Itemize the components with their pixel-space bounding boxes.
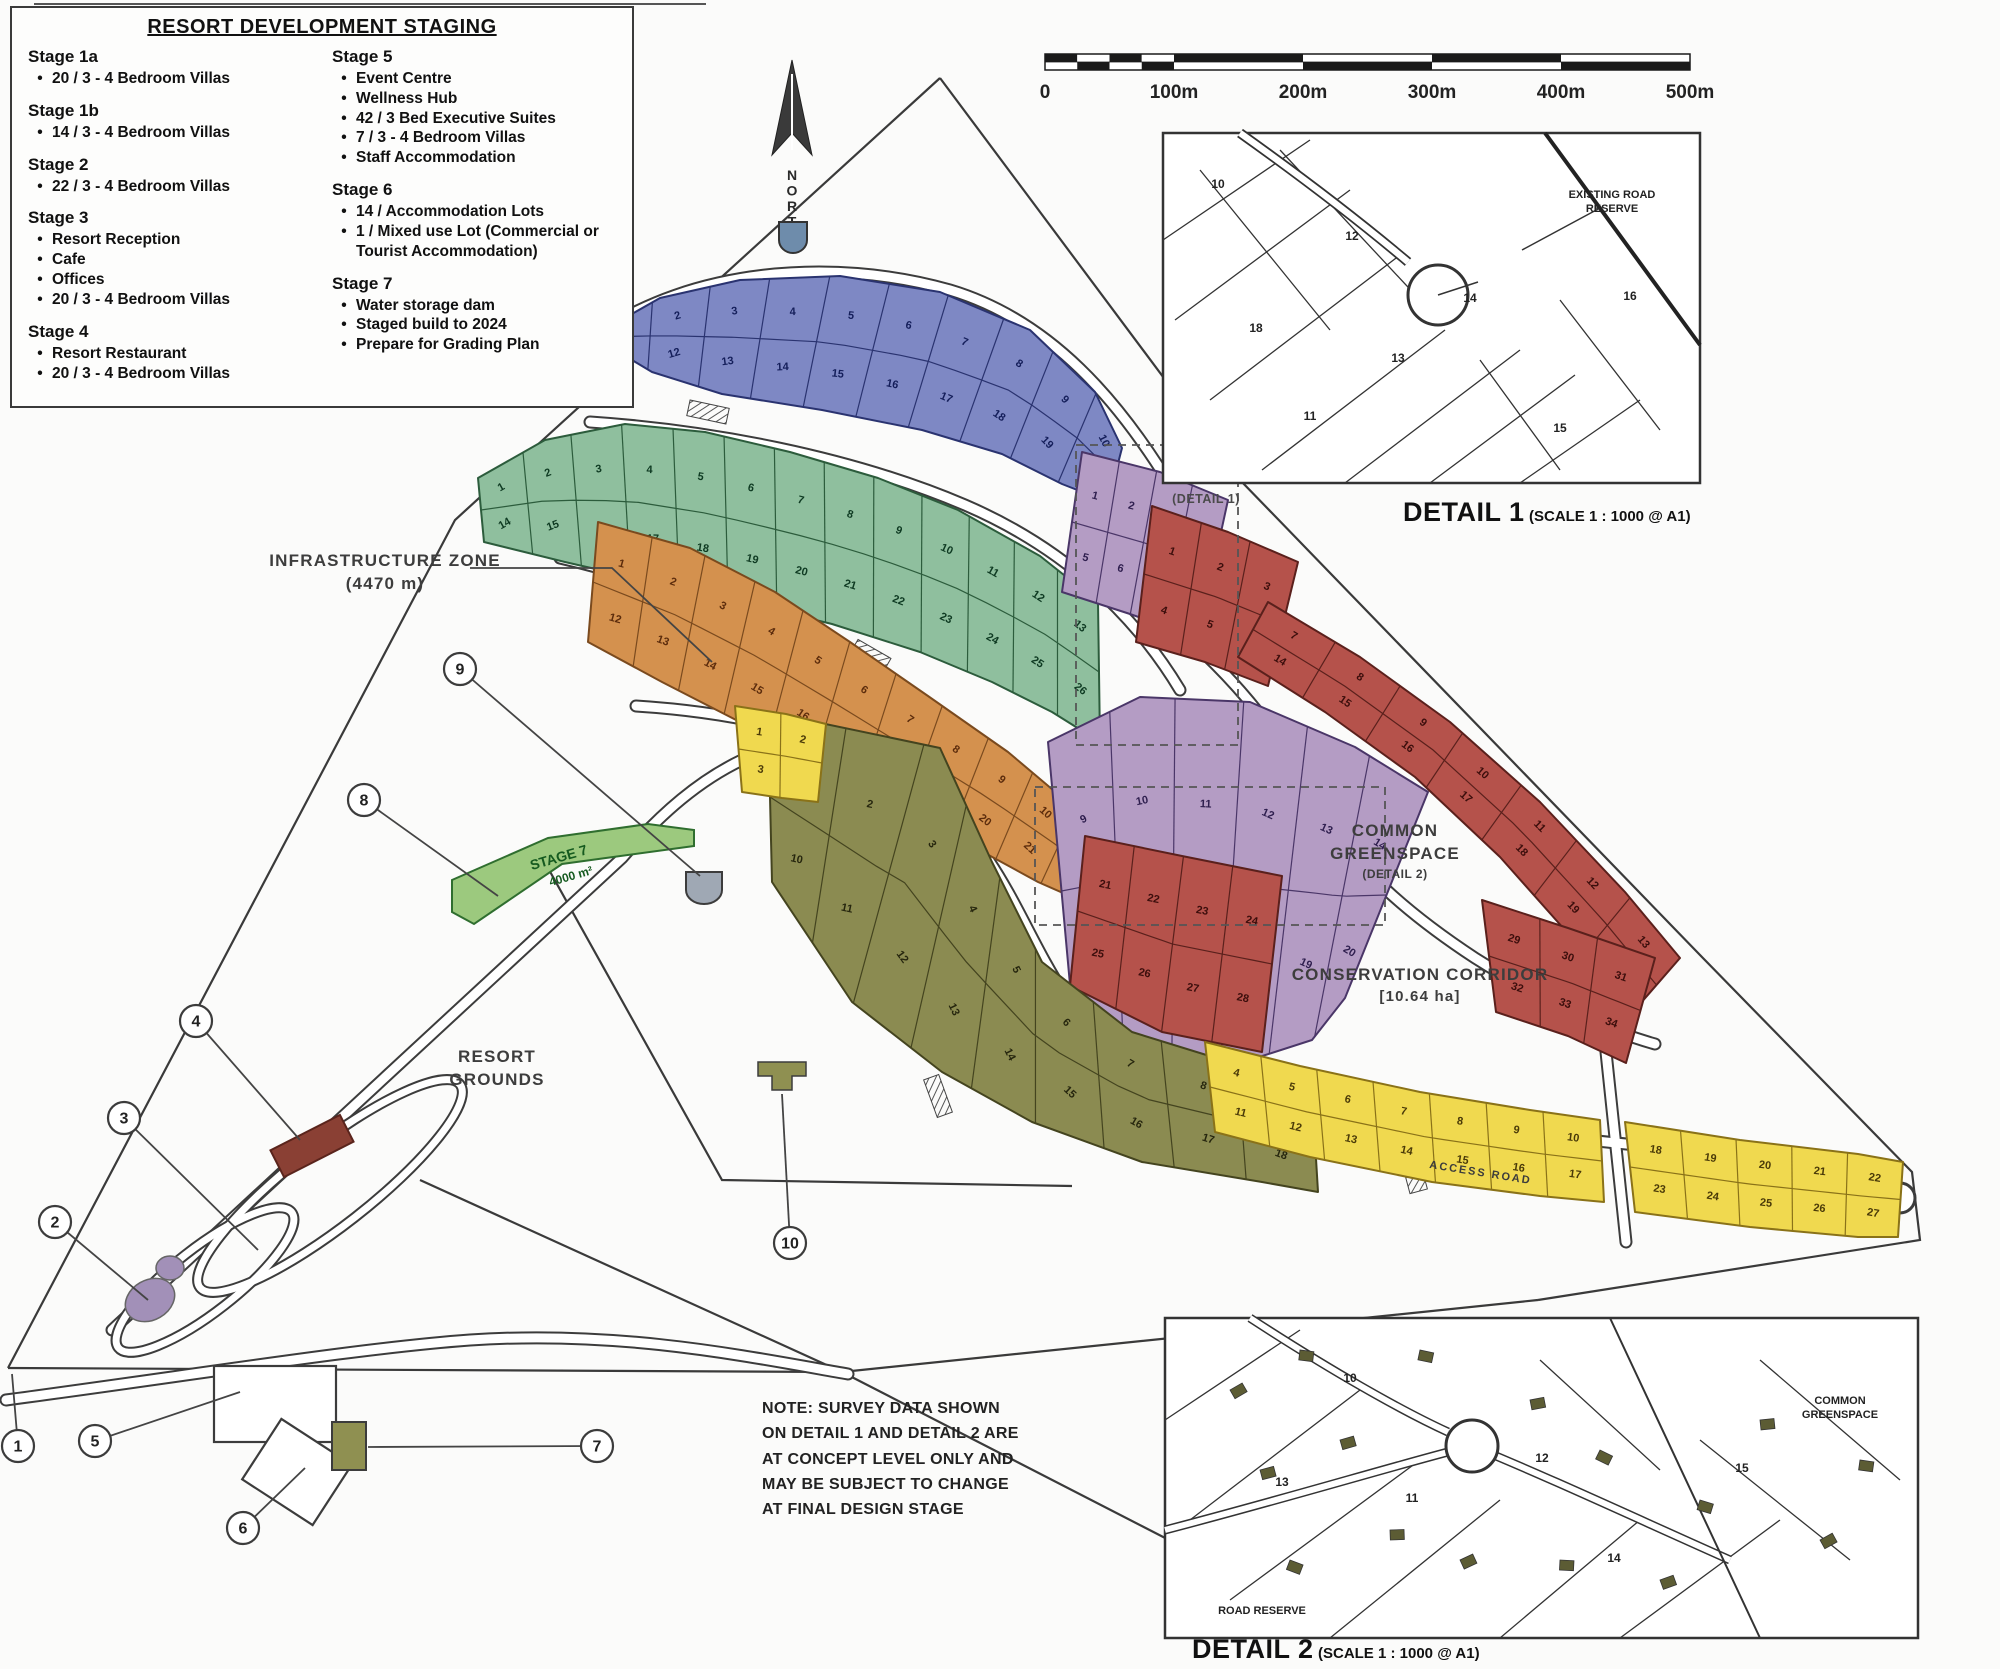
infrastructure-zone-label: INFRASTRUCTURE ZONE (4470 m) — [269, 550, 501, 596]
svg-text:4: 4 — [192, 1014, 201, 1031]
svg-text:10: 10 — [1566, 1131, 1580, 1145]
svg-text:5: 5 — [91, 1434, 100, 1451]
scale-bar: 0100m200m300m400m500m — [1040, 54, 1715, 103]
stage-building-red — [270, 1115, 353, 1177]
stage-item: •Event Centre — [332, 69, 616, 89]
detail-1-inset: 1011121314151618EXISTING ROADRESERVE — [1163, 133, 1700, 483]
stage-block: Stage 2•22 / 3 - 4 Bedroom Villas — [28, 155, 312, 197]
svg-text:17: 17 — [1568, 1168, 1582, 1182]
detail-1-caption: DETAIL 1 (SCALE 1 : 1000 @ A1) — [1403, 497, 1691, 528]
svg-text:12: 12 — [1345, 229, 1359, 243]
stage-item: •Staged build to 2024 — [332, 315, 616, 335]
svg-text:200m: 200m — [1279, 82, 1328, 103]
svg-text:11: 11 — [840, 902, 854, 916]
svg-text:13: 13 — [1275, 1475, 1289, 1489]
svg-text:19: 19 — [1703, 1151, 1717, 1165]
svg-text:27: 27 — [1866, 1206, 1880, 1220]
detail1-extent-tag: (DETAIL 1) — [1172, 492, 1240, 506]
svg-text:13: 13 — [1391, 351, 1405, 365]
svg-text:14: 14 — [776, 361, 790, 374]
svg-text:6: 6 — [239, 1521, 248, 1538]
legend-columns: Stage 1a•20 / 3 - 4 Bedroom VillasStage … — [28, 47, 616, 395]
resort-grounds-label: RESORT GROUNDS — [449, 1046, 544, 1092]
svg-text:R: R — [787, 198, 797, 214]
svg-text:RESERVE: RESERVE — [1586, 203, 1638, 215]
stage-block: Stage 4•Resort Restaurant•20 / 3 - 4 Bed… — [28, 322, 312, 384]
stage-item: •Wellness Hub — [332, 89, 616, 109]
svg-text:22: 22 — [1146, 892, 1160, 906]
stage-cluster-yellow-west: 123 — [735, 706, 826, 802]
stage-item: •Resort Restaurant — [28, 344, 312, 364]
stage-block: Stage 1a•20 / 3 - 4 Bedroom Villas — [28, 47, 312, 89]
svg-text:15: 15 — [831, 367, 845, 380]
svg-text:ROAD RESERVE: ROAD RESERVE — [1218, 1605, 1306, 1617]
stage-block: Stage 3•Resort Reception•Cafe•Offices•20… — [28, 208, 312, 309]
resort-staging-plan: STAGE 74000 m² 1234567891011121314151617… — [0, 0, 2000, 1669]
svg-text:26: 26 — [1137, 966, 1151, 980]
pump-station-icon — [758, 1062, 806, 1090]
svg-text:12: 12 — [1535, 1451, 1549, 1465]
stage-cluster-yellow-east: 18192021222324252627 — [1625, 1122, 1903, 1237]
svg-text:28: 28 — [1236, 991, 1250, 1005]
svg-text:25: 25 — [1091, 947, 1105, 961]
svg-text:14: 14 — [1607, 1551, 1621, 1565]
legend-column-2: Stage 5•Event Centre•Wellness Hub•42 / 3… — [332, 47, 616, 395]
stage-item: •20 / 3 - 4 Bedroom Villas — [28, 364, 312, 384]
stage-item: •1 / Mixed use Lot (Commercial or Touris… — [332, 222, 616, 262]
svg-text:0: 0 — [1040, 82, 1051, 103]
svg-text:1: 1 — [14, 1439, 23, 1456]
svg-text:13: 13 — [1344, 1132, 1359, 1146]
svg-text:100m: 100m — [1150, 82, 1199, 103]
svg-text:27: 27 — [1186, 981, 1200, 995]
svg-text:11: 11 — [1200, 798, 1212, 811]
svg-text:3: 3 — [120, 1111, 129, 1128]
stage-block: Stage 7•Water storage dam•Staged build t… — [332, 274, 616, 355]
svg-text:25: 25 — [1759, 1197, 1773, 1210]
survey-note: NOTE: SURVEY DATA SHOWN ON DETAIL 1 AND … — [762, 1396, 1062, 1522]
north-arrow: NORTH — [772, 60, 812, 253]
stage-item: •Offices — [28, 270, 312, 290]
svg-text:10: 10 — [781, 1236, 799, 1253]
stage-block: Stage 5•Event Centre•Wellness Hub•42 / 3… — [332, 47, 616, 168]
stage-item: •Cafe — [28, 250, 312, 270]
stage-block: Stage 1b•14 / 3 - 4 Bedroom Villas — [28, 101, 312, 143]
svg-text:22: 22 — [1868, 1171, 1882, 1185]
svg-text:18: 18 — [1249, 321, 1263, 335]
svg-text:500m: 500m — [1666, 82, 1715, 103]
svg-text:300m: 300m — [1408, 82, 1457, 103]
stage-item: •14 / 3 - 4 Bedroom Villas — [28, 123, 312, 143]
stage-name: Stage 1b — [28, 101, 312, 121]
svg-text:10: 10 — [1135, 794, 1149, 808]
svg-text:23: 23 — [1653, 1182, 1667, 1196]
svg-text:10: 10 — [1211, 177, 1225, 191]
stage-name: Stage 2 — [28, 155, 312, 175]
stage-item: •Water storage dam — [332, 296, 616, 316]
svg-text:15: 15 — [1553, 421, 1567, 435]
stage-name: Stage 6 — [332, 180, 616, 200]
stage-item: •42 / 3 Bed Executive Suites — [332, 109, 616, 129]
conservation-corridor-label: CONSERVATION CORRIDOR [10.64 ha] — [1292, 964, 1549, 1007]
legend-resort-development-staging: RESORT DEVELOPMENT STAGING Stage 1a•20 /… — [10, 6, 634, 408]
svg-text:11: 11 — [1406, 1491, 1419, 1505]
svg-text:8: 8 — [360, 793, 369, 810]
svg-text:10: 10 — [789, 852, 803, 866]
legend-column-1: Stage 1a•20 / 3 - 4 Bedroom VillasStage … — [28, 47, 312, 395]
svg-text:11: 11 — [1304, 409, 1317, 423]
svg-text:10: 10 — [1343, 1371, 1357, 1385]
detail-2-inset: 101112131415COMMONGREENSPACEROAD RESERVE — [1165, 1318, 1918, 1638]
svg-text:7: 7 — [593, 1439, 602, 1456]
detail-2-caption: DETAIL 2 (SCALE 1 : 1000 @ A1) — [1192, 1634, 1480, 1665]
svg-text:GREENSPACE: GREENSPACE — [1802, 1409, 1878, 1421]
svg-text:13: 13 — [721, 355, 735, 369]
stage-item: •22 / 3 - 4 Bedroom Villas — [28, 177, 312, 197]
svg-text:O: O — [787, 183, 798, 199]
svg-text:16: 16 — [1623, 289, 1637, 303]
stage-block: Stage 6•14 / Accommodation Lots•1 / Mixe… — [332, 180, 616, 261]
stage-name: Stage 1a — [28, 47, 312, 67]
svg-text:400m: 400m — [1537, 82, 1586, 103]
svg-text:18: 18 — [1649, 1143, 1663, 1157]
legend-title: RESORT DEVELOPMENT STAGING — [28, 16, 616, 39]
stage-item: •Resort Reception — [28, 230, 312, 250]
water-storage-dam-icon — [686, 872, 722, 904]
callout-markers: 12345678910 — [2, 653, 806, 1544]
stage-item: •14 / Accommodation Lots — [332, 202, 616, 222]
svg-text:2: 2 — [51, 1215, 60, 1232]
stage-name: Stage 4 — [28, 322, 312, 342]
svg-text:16: 16 — [885, 377, 899, 391]
common-greenspace-label: COMMON GREENSPACE (DETAIL 2) — [1330, 820, 1460, 882]
stage-name: Stage 5 — [332, 47, 616, 67]
stage-item: •Staff Accommodation — [332, 148, 616, 168]
svg-text:20: 20 — [1758, 1159, 1772, 1172]
svg-text:21: 21 — [1098, 878, 1112, 892]
stage-item: •7 / 3 - 4 Bedroom Villas — [332, 128, 616, 148]
svg-text:21: 21 — [1813, 1165, 1827, 1178]
stage-name: Stage 3 — [28, 208, 312, 228]
stage-item: •Prepare for Grading Plan — [332, 335, 616, 355]
svg-text:N: N — [787, 167, 797, 183]
svg-text:26: 26 — [1813, 1202, 1827, 1215]
svg-text:23: 23 — [1195, 904, 1209, 918]
north-shield-icon — [779, 222, 807, 253]
stage-item: •20 / 3 - 4 Bedroom Villas — [28, 69, 312, 89]
svg-text:15: 15 — [1735, 1461, 1749, 1475]
svg-text:14: 14 — [1463, 291, 1477, 305]
svg-text:9: 9 — [456, 662, 465, 679]
stage-item: •20 / 3 - 4 Bedroom Villas — [28, 290, 312, 310]
olive-building — [332, 1422, 366, 1470]
stage-name: Stage 7 — [332, 274, 616, 294]
svg-text:EXISTING ROAD: EXISTING ROAD — [1569, 189, 1656, 201]
svg-text:COMMON: COMMON — [1814, 1395, 1865, 1407]
